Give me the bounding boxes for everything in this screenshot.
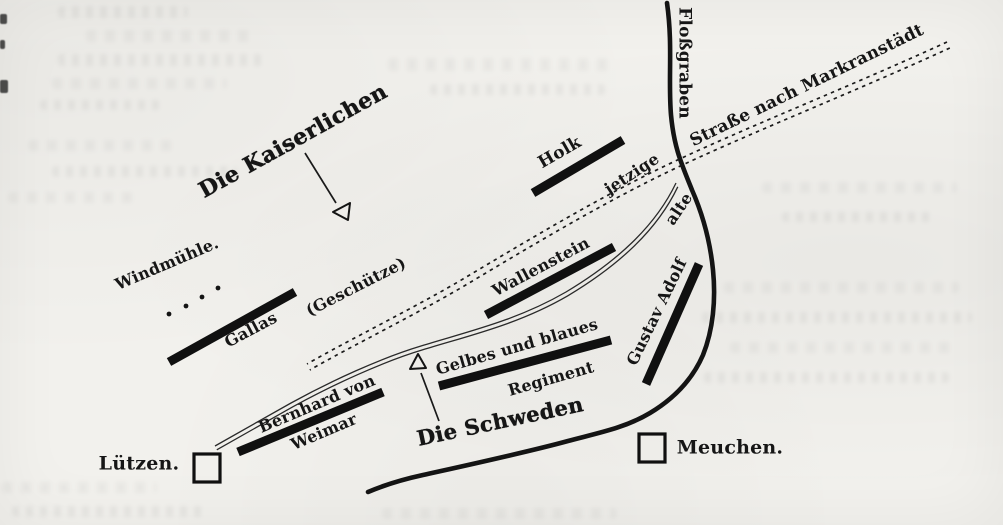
meuchen-village-square-icon	[639, 434, 665, 462]
luetzen-village-square-icon	[194, 454, 220, 482]
gallas-position-bar	[169, 292, 295, 362]
imperial-arrow-line	[305, 153, 336, 203]
flossgraben-label: Floßgraben	[676, 7, 693, 119]
imperial-direction-triangle-icon	[333, 203, 350, 220]
new-road-dotted-lower	[310, 48, 950, 370]
new-road-dotted-lines	[307, 42, 950, 370]
swedish-direction-triangle-icon	[410, 354, 426, 369]
luetzen-place-label: Lützen.	[99, 455, 180, 474]
windmill-battery-dots	[167, 286, 221, 317]
new-road-dotted-upper	[307, 42, 947, 364]
map-page: Die Kaiserlichen Die Schweden Floßgraben…	[0, 0, 1003, 525]
swedish-arrow-line	[421, 373, 439, 421]
meuchen-place-label: Meuchen.	[677, 439, 783, 458]
